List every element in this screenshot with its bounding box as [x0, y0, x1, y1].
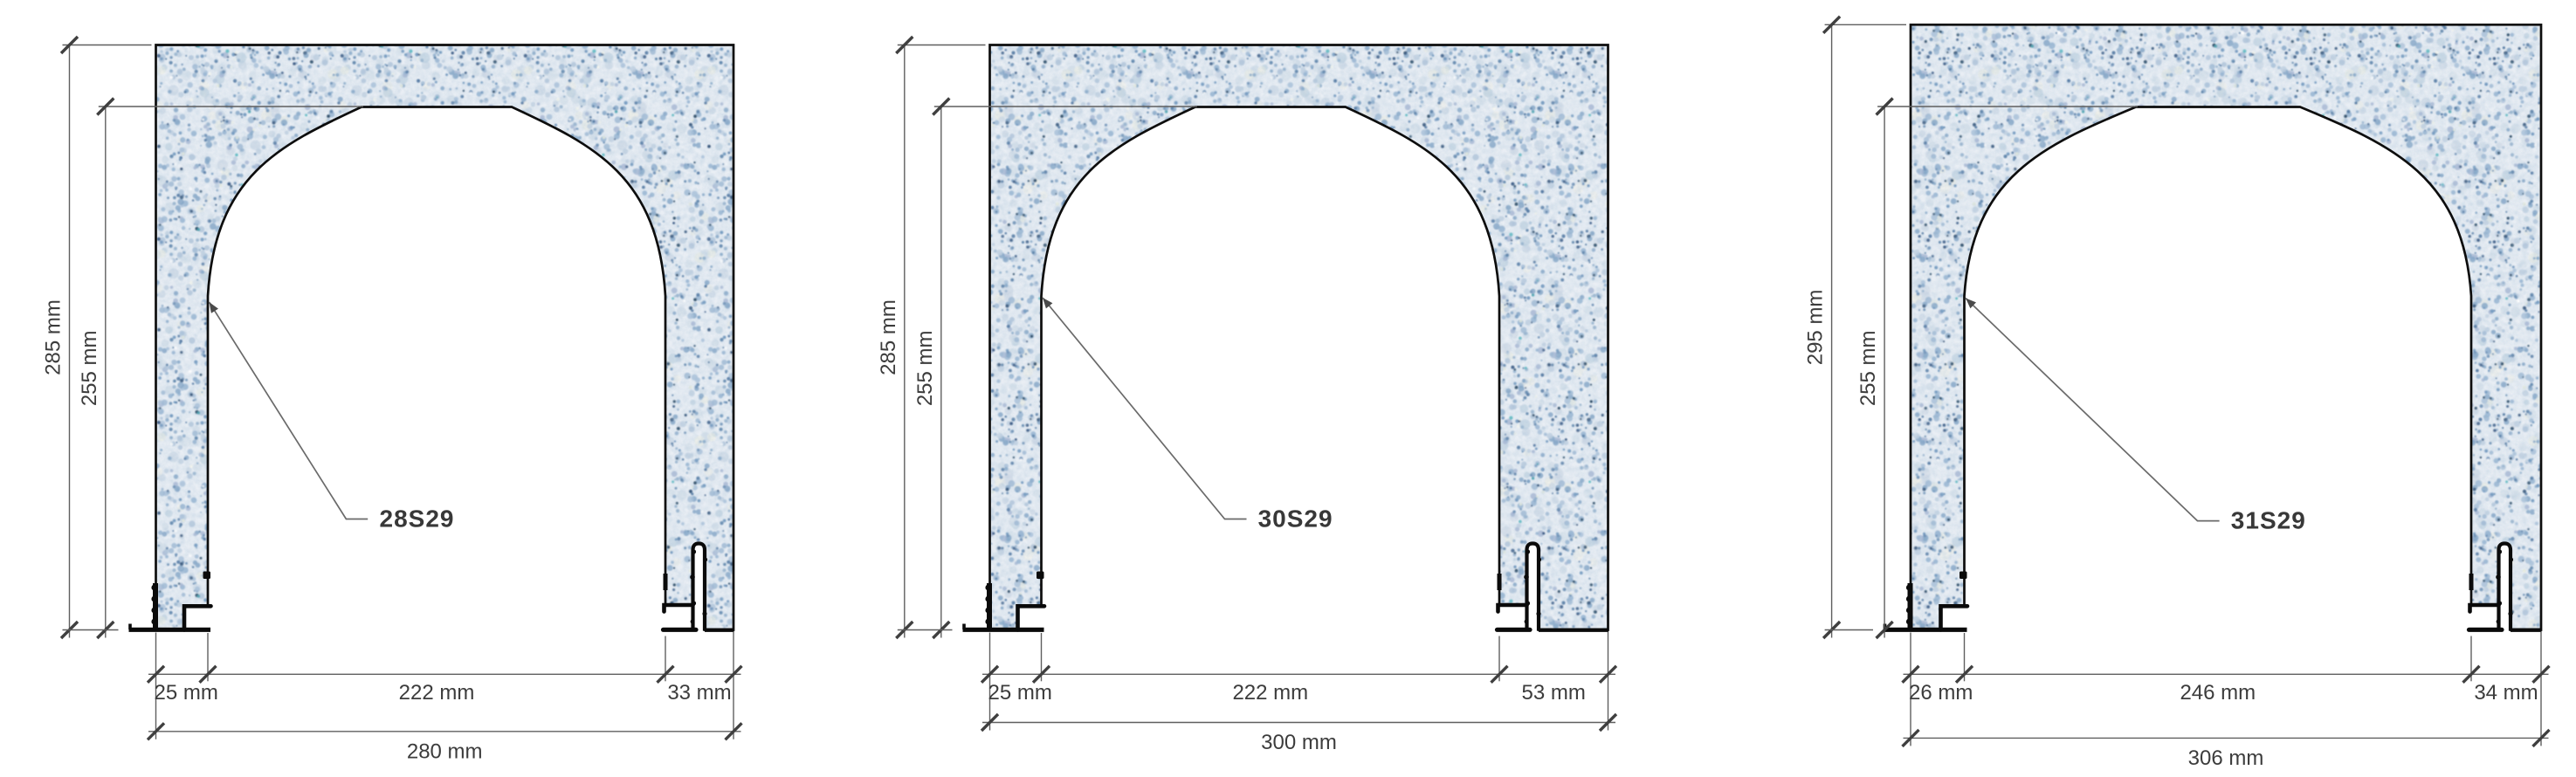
svg-text:300 mm: 300 mm	[1261, 731, 1337, 754]
svg-text:306 mm: 306 mm	[2188, 746, 2264, 770]
svg-text:255 mm: 255 mm	[78, 330, 101, 406]
svg-text:285 mm: 285 mm	[877, 299, 900, 375]
svg-text:30S29: 30S29	[1258, 505, 1333, 533]
svg-text:28S29: 28S29	[380, 505, 455, 533]
svg-text:26 mm: 26 mm	[1909, 681, 1973, 705]
svg-text:34 mm: 34 mm	[2474, 681, 2538, 705]
svg-text:255 mm: 255 mm	[913, 330, 937, 406]
svg-text:222 mm: 222 mm	[1232, 681, 1308, 705]
svg-text:255 mm: 255 mm	[1856, 330, 1880, 406]
svg-text:246 mm: 246 mm	[2180, 681, 2256, 705]
svg-text:285 mm: 285 mm	[42, 299, 65, 375]
svg-text:31S29: 31S29	[2231, 507, 2306, 534]
svg-text:25 mm: 25 mm	[155, 681, 218, 705]
svg-text:53 mm: 53 mm	[1522, 681, 1586, 705]
svg-text:222 mm: 222 mm	[399, 681, 475, 705]
svg-text:280 mm: 280 mm	[407, 739, 483, 763]
svg-text:33 mm: 33 mm	[667, 681, 731, 705]
svg-text:25 mm: 25 mm	[988, 681, 1052, 705]
svg-text:295 mm: 295 mm	[1804, 290, 1828, 366]
